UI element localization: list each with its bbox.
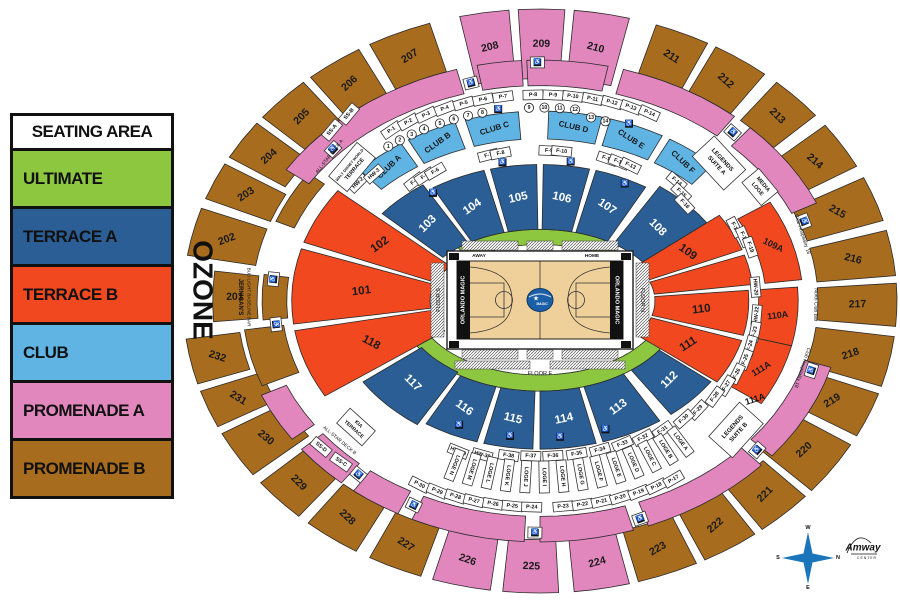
svg-text:12: 12: [572, 107, 578, 113]
svg-text:P-9: P-9: [549, 92, 558, 98]
svg-text:13: 13: [588, 115, 594, 121]
svg-text:4: 4: [423, 127, 426, 133]
suite-box-p-12[interactable]: P-12: [601, 95, 623, 110]
suite-circle-1[interactable]: 1: [384, 142, 393, 151]
section-label-209: 209: [533, 38, 551, 50]
suite-box-p-10[interactable]: P-10: [562, 90, 583, 102]
legend-item-club: CLUB: [13, 322, 171, 380]
svg-text:♿: ♿: [506, 431, 514, 439]
svg-text:F-37: F-37: [525, 453, 536, 459]
svg-text:LOGE J: LOGE J: [522, 467, 529, 487]
svg-text:MAGIC: MAGIC: [536, 302, 548, 306]
wheelchair-icon: ♿: [267, 272, 279, 287]
svg-text:Amway: Amway: [844, 543, 880, 554]
suite-circle-13[interactable]: 13: [587, 113, 596, 122]
wheelchair-icon: ♿: [567, 157, 575, 166]
svg-text:10: 10: [542, 105, 548, 111]
svg-text:LOGE I: LOGE I: [541, 468, 547, 487]
legend-title: SEATING AREA: [13, 116, 171, 148]
svg-text:♿: ♿: [499, 158, 507, 166]
svg-text:E: E: [806, 585, 810, 591]
suite-box-f-13[interactable]: F-13: [619, 157, 641, 174]
suite-box-loge-k[interactable]: LOGE K: [500, 459, 514, 492]
label-ozone: OZONE: [188, 240, 219, 340]
suite-circle-11[interactable]: 11: [555, 104, 564, 113]
suite-box-loge-g[interactable]: LOGE G: [573, 458, 588, 491]
svg-text:W: W: [805, 525, 811, 531]
svg-text:CENTER: CENTER: [857, 556, 877, 560]
wheelchair-icon: ♿: [530, 57, 544, 68]
section-label-217: 217: [849, 298, 867, 310]
svg-text:♿: ♿: [494, 104, 502, 112]
suite-box-p-11[interactable]: P-11: [582, 92, 603, 105]
svg-text:7: 7: [467, 113, 470, 119]
suite-box-p-22[interactable]: P-22: [572, 498, 593, 511]
svg-text:8: 8: [481, 110, 484, 116]
suite-box-loge-h[interactable]: LOGE H: [556, 460, 569, 493]
svg-text:2: 2: [398, 138, 401, 144]
suite-box-p-14[interactable]: P-14: [638, 105, 660, 122]
svg-text:F-36: F-36: [547, 453, 558, 460]
legend-item-terrace-b: TERRACE B: [13, 264, 171, 322]
svg-text:P-23: P-23: [557, 503, 569, 510]
suite-box-p-4[interactable]: P-4: [434, 100, 456, 116]
svg-text:♿: ♿: [531, 528, 539, 536]
svg-text:9: 9: [528, 105, 531, 111]
suite-circle-10[interactable]: 10: [540, 103, 549, 112]
suite-circle-7[interactable]: 7: [463, 111, 472, 120]
suite-box-f-6[interactable]: F-6: [424, 162, 446, 180]
svg-text:S: S: [776, 555, 780, 561]
wheelchair-icon: ♿: [429, 188, 437, 197]
seating-area-legend: SEATING AREA ULTIMATE TERRACE A TERRACE …: [10, 113, 174, 499]
home-bench-label: HOME: [585, 253, 600, 259]
suite-box-loge-j[interactable]: LOGE J: [520, 460, 532, 493]
wheelchair-icon: ♿: [556, 432, 564, 441]
away-bench-label: AWAY: [472, 253, 486, 259]
suite-box-p-25[interactable]: P-25: [502, 500, 523, 512]
suite-circle-2[interactable]: 2: [395, 136, 404, 145]
section-label-110: 110: [691, 302, 711, 316]
svg-text:♿: ♿: [534, 58, 542, 66]
suite-box-f-36[interactable]: F-36: [543, 450, 564, 461]
suite-box-loge-i[interactable]: LOGE I: [539, 461, 550, 493]
suite-box-p-7[interactable]: P-7: [492, 91, 513, 103]
svg-text:14: 14: [603, 119, 609, 125]
label-jernigan-s: JERNIGAN'S: [237, 279, 243, 315]
svg-text:6: 6: [452, 117, 455, 123]
svg-text:♿: ♿: [602, 425, 610, 433]
svg-text:P-25: P-25: [506, 503, 518, 510]
section-label-101: 101: [351, 284, 372, 298]
legend-item-ultimate: ULTIMATE: [13, 148, 171, 206]
wheelchair-icon: ♿: [494, 104, 502, 113]
wheelchair-icon: ♿: [499, 158, 507, 167]
wheelchair-icon: ♿: [270, 317, 283, 332]
suite-box-loge-n[interactable]: LOGE N: [444, 448, 465, 481]
suite-box-p-27[interactable]: P-27: [463, 494, 485, 508]
svg-text:N: N: [836, 555, 840, 561]
floor-n-label: FLOOR N: [639, 288, 645, 312]
suite-circle-8[interactable]: 8: [478, 108, 487, 117]
label-north-club-bar: North Club Bar: [812, 288, 819, 322]
seating-chart: 2042032022012322312302292282272262252242…: [0, 0, 900, 600]
suite-box-p-9[interactable]: P-9: [543, 90, 563, 100]
wheelchair-icon: ♿: [621, 179, 629, 188]
magic-center-logo: ★MAGIC: [527, 289, 553, 312]
svg-text:♿: ♿: [625, 119, 633, 127]
suite-box-p-26[interactable]: P-26: [482, 497, 503, 510]
suite-box-loge-f[interactable]: LOGE F: [590, 455, 608, 488]
legend-item-promenade-a: PROMENADE A: [13, 380, 171, 438]
basketball-court: ORLANDO MAGICORLANDO MAGIC★MAGICAWAYHOME…: [431, 241, 649, 377]
svg-text:P-7: P-7: [498, 94, 507, 101]
suite-circle-9[interactable]: 9: [524, 103, 533, 112]
legend-item-promenade-b: PROMENADE B: [13, 438, 171, 496]
right-baseline-text: ORLANDO MAGIC: [614, 276, 620, 324]
section-strip: [477, 61, 523, 91]
svg-text:P-24: P-24: [526, 504, 538, 510]
svg-text:♿: ♿: [556, 432, 564, 440]
suite-box-f-28[interactable]: F-28: [705, 386, 725, 408]
legend-item-terrace-a: TERRACE A: [13, 206, 171, 264]
svg-text:F-10: F-10: [556, 148, 568, 155]
svg-text:♿: ♿: [621, 179, 629, 187]
left-baseline-text: ORLANDO MAGIC: [461, 276, 467, 324]
suite-circle-12[interactable]: 12: [571, 105, 580, 114]
svg-text:♿: ♿: [455, 420, 463, 428]
suite-box-f-8[interactable]: F-8: [490, 147, 511, 160]
suite-box-loge-l[interactable]: LOGE L: [481, 456, 498, 489]
floor-s-label: FLOOR S: [436, 288, 442, 312]
wheelchair-icon: ♿: [602, 425, 610, 434]
amway-center-logo: AmwayCENTER: [844, 538, 880, 560]
suite-circle-5[interactable]: 5: [435, 119, 444, 128]
suite-circle-14[interactable]: 14: [601, 117, 610, 126]
svg-text:♿: ♿: [429, 188, 437, 196]
suite-box-p-5[interactable]: P-5: [453, 96, 475, 111]
wheelchair-icon: ♿: [455, 420, 463, 429]
wheelchair-icon: ♿: [528, 527, 542, 538]
suite-circle-6[interactable]: 6: [449, 115, 458, 124]
suite-box-f-10[interactable]: F-10: [551, 146, 572, 158]
suite-box-f-35[interactable]: F-35: [566, 447, 587, 460]
svg-text:3: 3: [410, 132, 413, 138]
suite-box-f-37[interactable]: F-37: [521, 451, 541, 461]
svg-text:11: 11: [557, 106, 563, 112]
suite-box-p-8[interactable]: P-8: [523, 90, 543, 100]
suite-circle-4[interactable]: 4: [419, 125, 428, 134]
wheelchair-icon: ♿: [506, 431, 514, 440]
svg-text:1: 1: [387, 144, 390, 150]
svg-text:♿: ♿: [567, 157, 575, 165]
suite-box-loge-e[interactable]: LOGE E: [606, 451, 626, 485]
label-bud-light-baseline-bar: BUD LIGHT BASELINE BAR: [247, 268, 252, 328]
svg-text:5: 5: [438, 121, 441, 127]
suite-box-p-23[interactable]: P-23: [553, 501, 574, 512]
suite-box-p-6[interactable]: P-6: [472, 93, 494, 107]
suite-box-hw-20[interactable]: HW-20: [750, 277, 761, 298]
section-label-225: 225: [522, 560, 540, 573]
wheelchair-icon: ♿: [463, 76, 479, 90]
wheelchair-icon: ♿: [625, 119, 633, 128]
suite-circle-3[interactable]: 3: [407, 130, 416, 139]
floor-e-label: FLOOR E: [528, 371, 553, 377]
svg-text:P-8: P-8: [529, 92, 538, 98]
suite-box-f-30[interactable]: F-30: [673, 409, 694, 429]
compass-rose: WNES: [776, 525, 840, 591]
suite-box-p-24[interactable]: P-24: [522, 502, 542, 512]
